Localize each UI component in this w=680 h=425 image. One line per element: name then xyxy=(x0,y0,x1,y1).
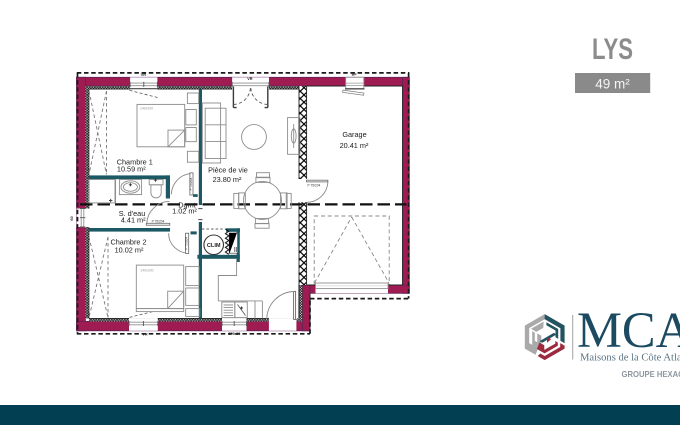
svg-text:140x200: 140x200 xyxy=(140,106,153,110)
svg-text:VR: VR xyxy=(247,77,253,81)
svg-text:Maisons de la Côte Atlantique: Maisons de la Côte Atlantique xyxy=(580,352,680,363)
svg-text:VR: VR xyxy=(142,333,148,337)
svg-text:LYS: LYS xyxy=(592,33,633,66)
svg-text:CLIM: CLIM xyxy=(207,243,221,249)
svg-text:P 75/204: P 75/204 xyxy=(308,184,321,188)
svg-text:10.59 m²: 10.59 m² xyxy=(117,165,146,174)
svg-text:49 m²: 49 m² xyxy=(595,76,630,91)
svg-text:P 75/204: P 75/204 xyxy=(152,220,165,224)
svg-text:140x200: 140x200 xyxy=(141,268,154,272)
svg-text:10.02 m²: 10.02 m² xyxy=(115,245,144,254)
svg-text:MCA: MCA xyxy=(577,302,680,358)
svg-text:60: 60 xyxy=(70,216,74,220)
svg-text:P 75/204: P 75/204 xyxy=(189,177,193,190)
svg-text:BF: BF xyxy=(352,72,358,76)
svg-text:3P0.30: 3P0.30 xyxy=(228,332,240,336)
svg-text:4.41 m²: 4.41 m² xyxy=(121,216,146,225)
svg-text:1.02 m²: 1.02 m² xyxy=(172,207,197,216)
svg-text:23.80 m²: 23.80 m² xyxy=(213,175,242,184)
svg-text:VR: VR xyxy=(141,73,147,77)
svg-text:20.41 m²: 20.41 m² xyxy=(340,141,369,150)
svg-text:GROUPE HEXAÔM: GROUPE HEXAÔM xyxy=(622,368,680,379)
svg-text:P 75/204: P 75/204 xyxy=(185,237,189,250)
svg-text:Pièce de vie: Pièce de vie xyxy=(208,165,248,174)
svg-text:Garage: Garage xyxy=(342,130,366,139)
